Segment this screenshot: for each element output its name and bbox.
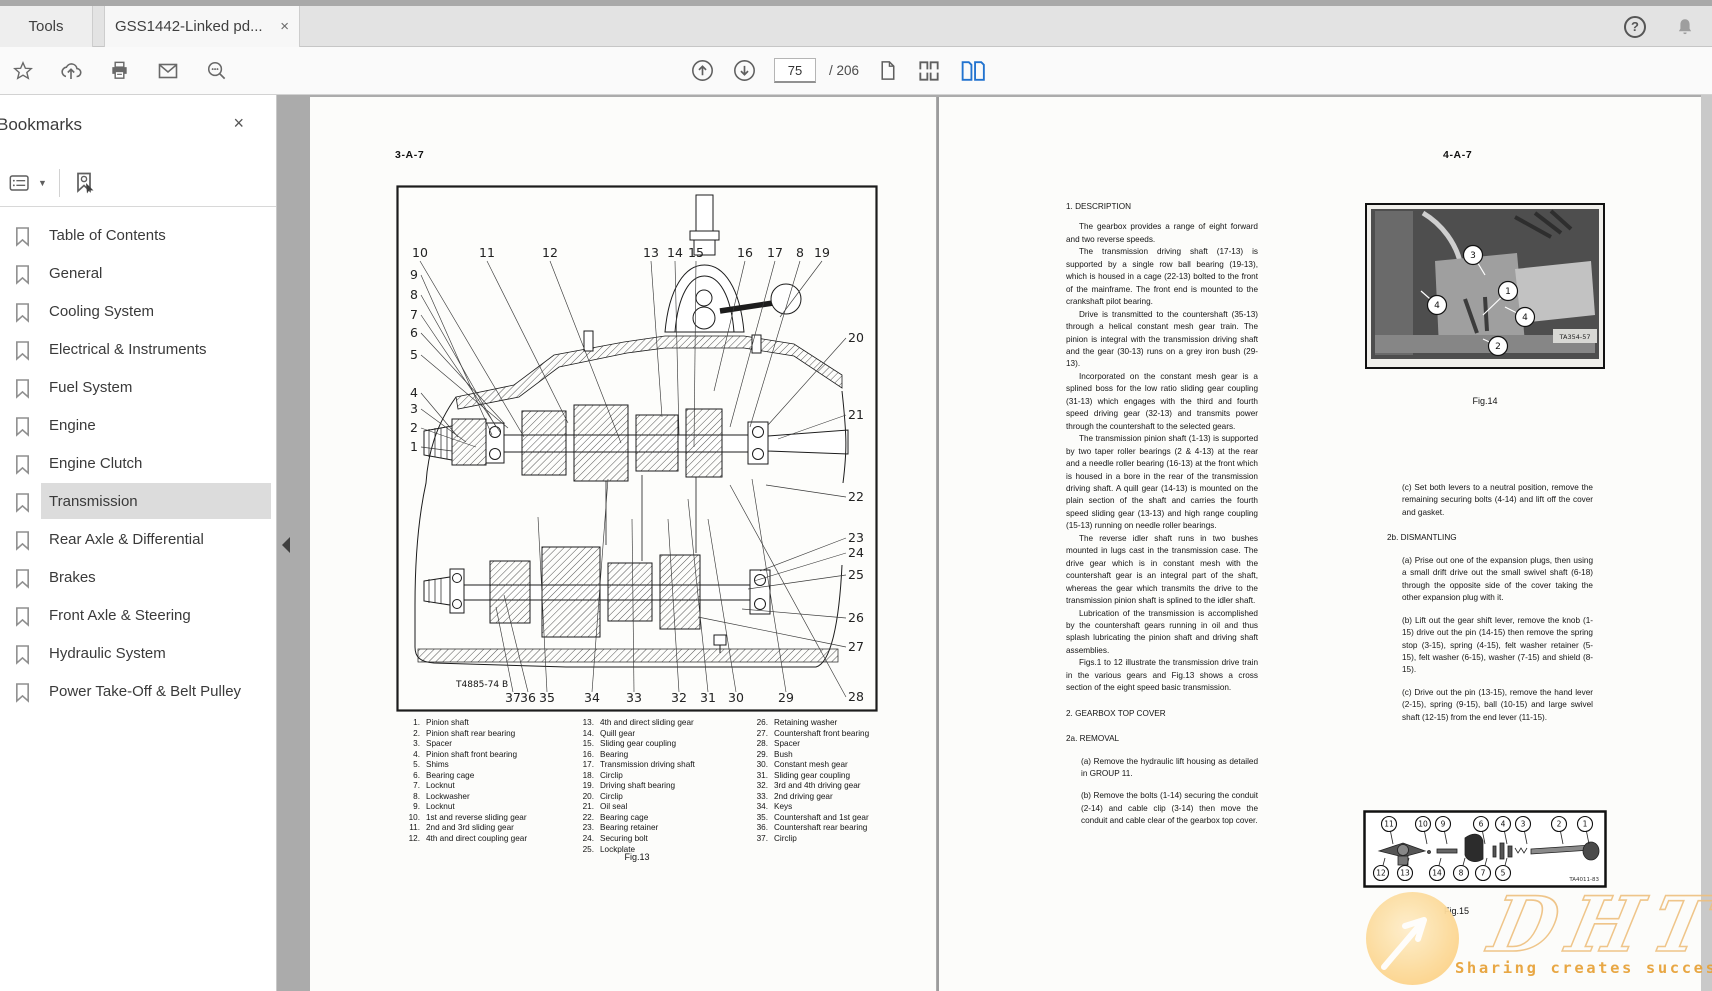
diagram-callout-number: 24 [848, 545, 864, 560]
drawing-reference: T4885-74 B [455, 680, 508, 690]
diagram-callout-number: 27 [848, 639, 864, 654]
diagram-callout-number: 2 [410, 420, 418, 435]
diagram-callout-number: 30 [728, 690, 744, 705]
diagram-callout-number: 8 [410, 287, 418, 302]
notifications-bell-icon[interactable] [1674, 16, 1696, 38]
body-paragraph: The transmission pinion shaft (1-13) is … [1066, 433, 1258, 533]
tab-close-icon[interactable]: × [280, 19, 289, 34]
previous-page-icon[interactable] [690, 58, 715, 83]
bookmark-item-label: Brakes [41, 559, 271, 595]
parts-list-item: 12.4th and direct coupling gear [402, 834, 574, 845]
bookmark-item[interactable]: Engine [0, 407, 276, 445]
parts-list-item: 10.1st and reverse sliding gear [402, 813, 574, 824]
parts-list-item: 16.Bearing [576, 750, 748, 761]
bookmark-item[interactable]: Cooling System [0, 293, 276, 331]
bookmark-icon [14, 568, 31, 589]
page-count-label: / 206 [829, 63, 859, 78]
bookmark-item[interactable]: Brakes [0, 559, 276, 597]
page-number-input[interactable] [774, 58, 816, 83]
cloud-upload-icon[interactable] [59, 59, 83, 83]
parts-list-column-1: 1.Pinion shaft2.Pinion shaft rear bearin… [402, 718, 574, 845]
diagram-callout-number: 34 [584, 690, 600, 705]
parts-list-item: 19.Driving shaft bearing [576, 781, 748, 792]
diagram-callout-number: 15 [688, 245, 704, 260]
parts-list-item: 27.Countershaft front bearing [750, 729, 922, 740]
page-reference: 3-A-7 [395, 149, 424, 161]
figure-15-caption: Fig.15 [1444, 906, 1469, 916]
diagram-callout-number: 3 [410, 401, 418, 416]
parts-list-item: 5.Shims [402, 760, 574, 771]
collapse-panel-icon[interactable] [282, 537, 290, 553]
photo-callout-number: 4 [1522, 313, 1528, 323]
parts-list-item: 35.Countershaft and 1st gear [750, 813, 922, 824]
parts-list-item: 13.4th and direct sliding gear [576, 718, 748, 729]
diagram-callout-number: 29 [778, 690, 794, 705]
email-icon[interactable] [156, 59, 180, 83]
diagram-callout-number: 22 [848, 489, 864, 504]
bookmark-item[interactable]: Electrical & Instruments [0, 331, 276, 369]
diagram-callout-number: 4 [410, 385, 418, 400]
parts-list-item: 14.Quill gear [576, 729, 748, 740]
main-area: Bookmarks × ▼ Table of ContentsGeneralCo… [0, 95, 1712, 991]
parts-list-column-2: 13.4th and direct sliding gear14.Quill g… [576, 718, 748, 855]
dismantling-column: (c) Set both levers to a neutral positio… [1387, 472, 1593, 734]
bookmark-item-label: General [41, 255, 271, 291]
photo-callout-number: 3 [1470, 251, 1476, 261]
bookmark-item-label: Rear Axle & Differential [41, 521, 271, 557]
parts-list-item: 23.Bearing retainer [576, 823, 748, 834]
tab-document[interactable]: GSS1442-Linked pd... × [104, 6, 300, 47]
bookmark-item-label: Transmission [41, 483, 271, 519]
diagram-callout-number: 11 [479, 245, 495, 260]
parts-list-item: 3.Spacer [402, 739, 574, 750]
single-page-icon[interactable] [876, 59, 899, 82]
description-column: 1. DESCRIPTIONThe gearbox provides a ran… [1066, 201, 1258, 838]
pdf-viewer-window: Tools GSS1442-Linked pd... × ? [0, 0, 1712, 991]
transmission-cross-section-figure: 1011121314151617819987654321202122232425… [396, 185, 878, 712]
body-paragraph: The transmission driving shaft (17-13) i… [1066, 246, 1258, 308]
diagram-callout-number: 6 [1479, 820, 1484, 829]
body-paragraph: Figs.1 to 12 illustrate the transmission… [1066, 657, 1258, 694]
bookmark-icon [14, 644, 31, 665]
body-paragraph: Lubrication of the transmission is accom… [1066, 608, 1258, 658]
tab-bar: Tools GSS1442-Linked pd... × ? [0, 6, 1712, 47]
tab-tools[interactable]: Tools [0, 6, 93, 47]
bookmark-icon [14, 340, 31, 361]
next-page-icon[interactable] [732, 58, 757, 83]
toolbar-divider [59, 169, 60, 197]
bookmark-item[interactable]: Hydraulic System [0, 635, 276, 673]
diagram-callout-number: 1 [410, 439, 418, 454]
bookmark-options-icon[interactable] [8, 171, 34, 195]
parts-list-item: 24.Securing bolt [576, 834, 748, 845]
diagram-callout-number: 12 [542, 245, 558, 260]
body-paragraph: Drive is transmitted to the countershaft… [1066, 309, 1258, 371]
bookmark-item-label: Hydraulic System [41, 635, 271, 671]
diagram-callout-number: 4 [1501, 820, 1506, 829]
section-heading: 2. GEARBOX TOP COVER [1066, 708, 1258, 720]
parts-list-item: 11.2nd and 3rd sliding gear [402, 823, 574, 834]
diagram-callout-number: 28 [848, 689, 864, 704]
bookmarks-panel-title: Bookmarks [0, 115, 82, 135]
diagram-callout-number: 9 [1441, 820, 1446, 829]
page-thumbnails-icon[interactable] [916, 58, 942, 84]
bookmark-item[interactable]: Transmission [0, 483, 276, 521]
body-paragraph: (b) Lift out the gear shift lever, remov… [1387, 615, 1593, 677]
parts-list-item: 26.Retaining washer [750, 718, 922, 729]
body-paragraph: The gearbox provides a range of eight fo… [1066, 221, 1258, 246]
bookmark-icon [14, 492, 31, 513]
bookmarks-list: Table of ContentsGeneralCooling SystemEl… [0, 208, 276, 711]
parts-list-item: 22.Bearing cage [576, 813, 748, 824]
main-toolbar: / 206 [0, 47, 1712, 95]
parts-list-item: 30.Constant mesh gear [750, 760, 922, 771]
vertical-scrollbar[interactable] [1701, 95, 1712, 991]
diagram-callout-number: 25 [848, 567, 864, 582]
bookmark-icon [14, 606, 31, 627]
diagram-callout-number: 16 [737, 245, 753, 260]
bookmark-item[interactable]: Rear Axle & Differential [0, 521, 276, 559]
bookmarks-toolbar: ▼ [0, 159, 276, 207]
bookmark-item[interactable]: Table of Contents [0, 217, 276, 255]
bookmark-item-label: Engine [41, 407, 271, 443]
section-heading: 2a. REMOVAL [1066, 733, 1258, 745]
goto-current-bookmark-icon[interactable] [72, 170, 98, 196]
diagram-callout-number: 8 [1459, 869, 1464, 878]
diagram-callout-number: 5 [410, 347, 418, 362]
chevron-down-icon[interactable]: ▼ [38, 178, 47, 188]
parts-list-item: 37.Circlip [750, 834, 922, 845]
photo-reference: TA354-57 [1559, 333, 1591, 341]
diagram-callout-number: 14 [667, 245, 683, 260]
bookmark-icon [14, 454, 31, 475]
parts-list-item: 31.Sliding gear coupling [750, 771, 922, 782]
document-area: 3-A-7 [277, 95, 1712, 991]
parts-list-item: 1.Pinion shaft [402, 718, 574, 729]
favorite-star-icon[interactable] [12, 60, 34, 82]
diagram-callout-number: 7 [410, 307, 418, 322]
diagram-callout-number: 13 [643, 245, 659, 260]
diagram-callout-number: 7 [1481, 869, 1486, 878]
parts-list-column-3: 26.Retaining washer27.Countershaft front… [750, 718, 922, 845]
parts-list-item: 20.Circlip [576, 792, 748, 803]
body-paragraph: Incorporated on the constant mesh gear i… [1066, 371, 1258, 433]
diagram-callout-number: 20 [848, 330, 864, 345]
body-paragraph: (a) Prise out one of the expansion plugs… [1387, 555, 1593, 605]
diagram-callout-number: 13 [1400, 869, 1410, 878]
parts-list-item: 9.Locknut [402, 802, 574, 813]
parts-list-item: 32.3rd and 4th driving gear [750, 781, 922, 792]
bookmark-icon [14, 682, 31, 703]
parts-list-item: 7.Locknut [402, 781, 574, 792]
diagram-callout-number: 17 [767, 245, 783, 260]
body-paragraph: The reverse idler shaft runs in two bush… [1066, 533, 1258, 608]
diagram-callout-number: 26 [848, 610, 864, 625]
bookmark-icon [14, 226, 31, 247]
two-page-view-icon[interactable] [959, 58, 988, 84]
diagram-callout-number: 14 [1432, 869, 1442, 878]
parts-list-item: 34.Keys [750, 802, 922, 813]
pdf-page-right: 4-A-7 1. DESCRIPTIONThe gearbox provides… [937, 97, 1702, 991]
diagram-reference: TA4011-83 [1568, 877, 1599, 883]
bookmark-item-label: Electrical & Instruments [41, 331, 271, 367]
bookmark-icon [14, 264, 31, 285]
diagram-callout-number: 37 [505, 690, 521, 705]
bookmark-icon [14, 530, 31, 551]
diagram-callout-number: 8 [796, 245, 804, 260]
bookmark-item[interactable]: General [0, 255, 276, 293]
pdf-page-left: 3-A-7 [310, 97, 936, 991]
figure-14-caption: Fig.14 [1365, 396, 1605, 406]
help-icon[interactable]: ? [1624, 16, 1646, 38]
diagram-callout-number: 5 [1501, 869, 1506, 878]
bookmark-item[interactable]: Engine Clutch [0, 445, 276, 483]
print-icon[interactable] [108, 59, 131, 82]
bookmark-icon [14, 416, 31, 437]
diagram-callout-number: 12 [1376, 869, 1386, 878]
parts-list-item: 36.Countershaft rear bearing [750, 823, 922, 834]
figure-13-caption: Fig.13 [396, 852, 878, 862]
figure-14-photo: TA354-57 31442 [1365, 203, 1605, 369]
bookmark-item-label: Front Axle & Steering [41, 597, 271, 633]
parts-list-item: 4.Pinion shaft front bearing [402, 750, 574, 761]
diagram-callout-number: 35 [539, 690, 555, 705]
diagram-callout-number: 11 [1384, 820, 1394, 829]
body-paragraph: (c) Drive out the pin (13-15), remove th… [1387, 687, 1593, 724]
diagram-callout-number: 2 [1557, 820, 1562, 829]
diagram-callout-number: 1 [1583, 820, 1588, 829]
photo-callout-number: 4 [1434, 301, 1440, 311]
diagram-callout-number: 19 [814, 245, 830, 260]
body-paragraph: (c) Set both levers to a neutral positio… [1387, 482, 1593, 519]
bookmark-item[interactable]: Power Take-Off & Belt Pulley [0, 673, 276, 711]
bookmark-item-label: Cooling System [41, 293, 271, 329]
tab-document-label: GSS1442-Linked pd... [115, 18, 263, 35]
figure-15-diagram: 1110964321121314875 TA4011-83 [1363, 810, 1607, 888]
bookmarks-close-icon[interactable]: × [233, 114, 244, 132]
diagram-callout-number: 10 [412, 245, 428, 260]
search-icon[interactable] [205, 59, 228, 82]
tab-tools-label: Tools [28, 18, 63, 35]
photo-callout-number: 1 [1505, 287, 1511, 297]
parts-list-item: 15.Sliding gear coupling [576, 739, 748, 750]
parts-list-item: 8.Lockwasher [402, 792, 574, 803]
bookmark-icon [14, 302, 31, 323]
diagram-callout-number: 3 [1521, 820, 1526, 829]
parts-list-item: 21.Oil seal [576, 802, 748, 813]
bookmark-item[interactable]: Fuel System [0, 369, 276, 407]
parts-list-item: 28.Spacer [750, 739, 922, 750]
page-reference: 4-A-7 [1443, 149, 1472, 161]
bookmark-item-label: Table of Contents [41, 217, 271, 253]
section-heading: 1. DESCRIPTION [1066, 201, 1258, 213]
diagram-callout-number: 6 [410, 325, 418, 340]
bookmark-item-label: Power Take-Off & Belt Pulley [41, 673, 271, 709]
parts-list-item: 17.Transmission driving shaft [576, 760, 748, 771]
bookmark-item-label: Engine Clutch [41, 445, 271, 481]
body-paragraph: (b) Remove the bolts (1-14) securing the… [1066, 790, 1258, 827]
diagram-callout-number: 33 [626, 690, 642, 705]
diagram-callout-number: 31 [700, 690, 716, 705]
photo-callout-number: 2 [1495, 342, 1501, 352]
bookmark-item[interactable]: Front Axle & Steering [0, 597, 276, 635]
diagram-callout-number: 10 [1418, 820, 1428, 829]
parts-list-item: 29.Bush [750, 750, 922, 761]
parts-list-item: 6.Bearing cage [402, 771, 574, 782]
diagram-callout-number: 32 [671, 690, 687, 705]
parts-list-item: 18.Circlip [576, 771, 748, 782]
diagram-callout-number: 23 [848, 530, 864, 545]
bookmark-icon [14, 378, 31, 399]
parts-list-item: 33.2nd driving gear [750, 792, 922, 803]
parts-list-item: 2.Pinion shaft rear bearing [402, 729, 574, 740]
diagram-callout-number: 36 [520, 690, 536, 705]
body-paragraph: (a) Remove the hydraulic lift housing as… [1066, 756, 1258, 781]
bookmark-item-label: Fuel System [41, 369, 271, 405]
bookmarks-panel: Bookmarks × ▼ Table of ContentsGeneralCo… [0, 95, 277, 991]
diagram-callout-number: 9 [410, 267, 418, 282]
section-heading: 2b. DISMANTLING [1387, 532, 1593, 544]
diagram-callout-number: 21 [848, 407, 864, 422]
